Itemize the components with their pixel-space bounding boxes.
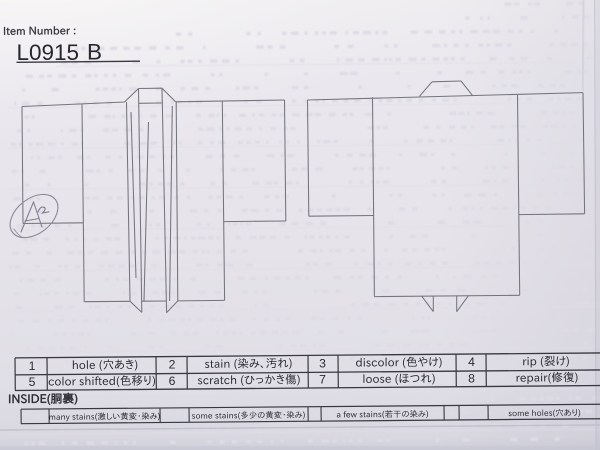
svg-text:7: 7 xyxy=(319,373,326,387)
svg-text:3: 3 xyxy=(319,356,326,370)
svg-text:6: 6 xyxy=(169,374,176,388)
svg-text:1: 1 xyxy=(29,359,36,373)
svg-text:5: 5 xyxy=(29,375,36,389)
svg-text:B: B xyxy=(87,40,102,65)
svg-text:8: 8 xyxy=(468,371,475,385)
svg-text:4: 4 xyxy=(468,355,475,369)
svg-text:2: 2 xyxy=(169,358,176,372)
